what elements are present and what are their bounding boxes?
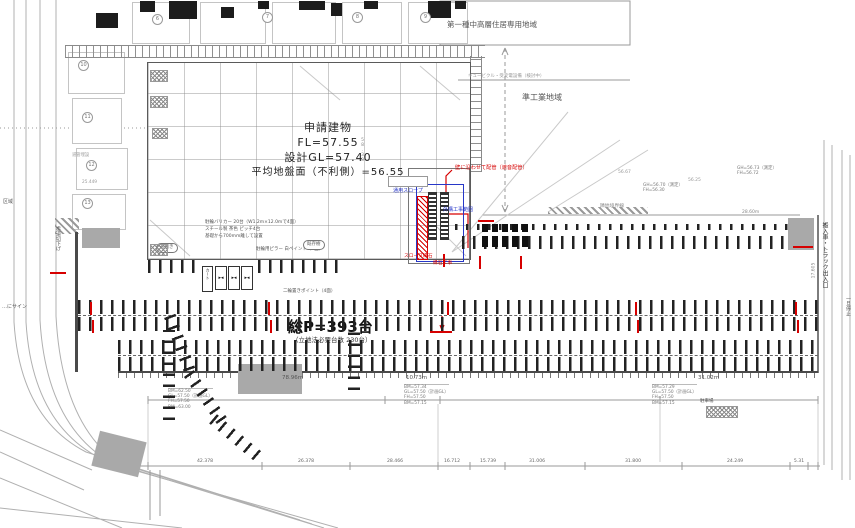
right-vertical-dim: 17.605 (811, 263, 816, 279)
dim-chain-label: 15.739 (480, 459, 496, 464)
rooftop-building (258, 1, 269, 9)
neighbor-house (68, 52, 125, 94)
red-revision-tick (90, 302, 92, 315)
cart-corral-box: ▸◂ (228, 266, 240, 290)
neighbor-number-mark: 10 (78, 60, 89, 71)
red-revision-tick (92, 320, 94, 333)
parking-row (118, 340, 818, 354)
bike-note-1: 駐輪バリカー 20台（W1.2m×12.0mで4面） (205, 219, 299, 225)
spot-level-2: 56.25 (688, 178, 701, 183)
parking-row (258, 260, 346, 273)
rooftop-building (428, 1, 451, 18)
cart-corral-label: カート (205, 268, 211, 280)
left-sign-note: …にサイン (2, 303, 27, 310)
equipment-note: キュービクル・受変電設備（検討中） (468, 73, 544, 79)
stop-label: 一旦停止 (845, 296, 852, 316)
dim-chain-label: 16.712 (444, 459, 460, 464)
left-pipe-note: 道管埋設 (72, 152, 89, 158)
gaikou-note-blue: 外構工事範囲 (443, 206, 473, 213)
planting-hatch (150, 244, 168, 256)
level-line: FH=56.72 (737, 171, 777, 176)
planting-hatch (150, 70, 168, 82)
left-area-note: 区域 (3, 198, 13, 205)
aisle-centerline (118, 355, 818, 356)
building-fl: FL=57.55 (228, 135, 428, 150)
neighbor-number-mark: 11 (82, 112, 93, 123)
site-plan-drawing: 申請建物 FL=57.55 設計GL=57.40 平均地盤面（不利側）=56.5… (0, 0, 855, 528)
rooftop-building (455, 1, 466, 9)
level-note-2: GH=56.73（測定）FH=56.72 (737, 166, 777, 176)
parking-row (148, 260, 200, 273)
spot-level-vertical: 58.38 (360, 138, 365, 163)
dim-upper-right: 31.02m (698, 375, 719, 381)
moto-note: 二輪置きポイント（4面） (283, 288, 335, 294)
benchmark-extra-label: 駐車場 (700, 398, 714, 404)
dim-chain-label: 24.249 (727, 459, 743, 464)
level-line: FH=56.30 (643, 188, 683, 193)
dim-chain-label: 31.800 (625, 459, 641, 464)
stair-block (440, 192, 449, 240)
sidewalk-cut-label: 歩道切下げ (55, 226, 62, 251)
neighbor-number-mark: 9 (420, 12, 431, 23)
rooftop-building (221, 7, 234, 18)
rooftop-building (169, 1, 197, 19)
benchmark-block-right: BM=57.29GL=57.50（計画GL）FH=57.50BM=57.15 (652, 384, 697, 406)
planting-hatch (152, 128, 168, 139)
red-revision-line (478, 220, 494, 222)
zoning-residential-label: 第一種中高層住居専用地域 (447, 19, 537, 30)
red-revision-tick (479, 256, 481, 269)
rooftop-building (299, 1, 325, 10)
parking-strip-filled (482, 224, 532, 232)
planting-hatch (150, 96, 168, 108)
truck-entrance-label: 搬入車・トラック出入口 (820, 222, 829, 288)
neighbor-house (72, 194, 126, 230)
parking-row (78, 317, 818, 331)
neighbor-number-mark: 13 (82, 198, 93, 209)
red-revision-tick (270, 320, 272, 333)
slope-label: 通用スロープ (393, 188, 423, 194)
zoning-industrial-label: 準工業地域 (522, 92, 562, 103)
left-dim-note: 25.449 (82, 180, 97, 185)
slope-curb-note-red: スロープ縁石 (404, 252, 433, 259)
benchmark-line: BM=57.15 (652, 401, 697, 406)
building-info-text: 申請建物 FL=57.55 設計GL=57.40 平均地盤面（不利側）=56.5… (228, 120, 428, 180)
red-revision-tick (447, 302, 449, 315)
level-note-1: GH=56.70（測定）FH=56.30 (643, 183, 683, 193)
dim-chain-label: 28.466 (387, 459, 403, 464)
parking-row-vertical (348, 330, 360, 390)
red-revision-tick (795, 302, 797, 315)
pipe-note-red: 壁に沿わせて配管（遮音配管） (455, 164, 528, 171)
boundary-wall-hatch-top (65, 45, 485, 58)
neighbor-number-mark: 6 (152, 14, 163, 25)
stair-block (428, 192, 437, 240)
dim-upper-left: 78.96m (282, 375, 303, 381)
red-revision-tick (637, 320, 639, 333)
benchmark-block-mid: BM=57.34GL=57.50（計画GL）FH=57.50BM=57.15 (404, 384, 449, 406)
rooftop-building (331, 3, 342, 16)
boundary-line-label: 隣地境界線 (600, 202, 624, 209)
bike-note-2: スチール製 茶色 ピッチ4台 (205, 226, 260, 232)
red-revision-tick (268, 302, 270, 315)
oval-label-2: 既存樹 (303, 240, 325, 250)
rooftop-building (96, 13, 118, 28)
slope-label-box: 通用スロープ (388, 176, 428, 187)
neighbor-number-mark: 8 (352, 12, 363, 23)
rooftop-building (364, 1, 378, 9)
aisle-centerline (78, 315, 818, 316)
benchmark-hatch (706, 406, 738, 418)
red-revision-tick (635, 302, 637, 315)
red-revision-line (430, 331, 452, 333)
bike-note-3: 基礎から700mm離して設置 (205, 233, 263, 239)
spot-level-1: 56.67 (618, 170, 631, 175)
construction-red-hatch (417, 196, 428, 260)
boundary-seg-dim: 28.60m (742, 210, 759, 215)
dim-upper-mid: 10.73m (406, 375, 427, 381)
rooftop-building (140, 1, 155, 12)
dim-chain-label: 5.31 (794, 459, 804, 464)
boundary-hatch-segment (548, 207, 648, 214)
red-revision-tick (520, 256, 522, 269)
entrance-pavement (82, 228, 120, 248)
benchmark-line: BM=57.15 (404, 401, 449, 406)
dim-chain-label: 26.378 (298, 459, 314, 464)
red-revision-tick (797, 320, 799, 333)
neighbor-house (72, 98, 122, 144)
neighbor-number-mark: 7 (262, 12, 273, 23)
cart-corral-label-box: カート (202, 266, 213, 292)
cart-corral-box: ▸◂ (215, 266, 227, 290)
building-gl: 設計GL=57.40 (228, 150, 428, 165)
neighbor-number-mark: 12 (86, 160, 97, 171)
red-revision-tick (443, 254, 445, 267)
dim-chain-label: 31.006 (529, 459, 545, 464)
red-revision-line (793, 246, 813, 248)
parking-strip-filled (482, 236, 532, 247)
parking-row (118, 357, 818, 371)
building-name: 申請建物 (228, 120, 428, 135)
red-revision-line (50, 272, 66, 274)
cart-corral-box: ▸◂ (241, 266, 253, 290)
dim-chain-label: 42.378 (197, 459, 213, 464)
